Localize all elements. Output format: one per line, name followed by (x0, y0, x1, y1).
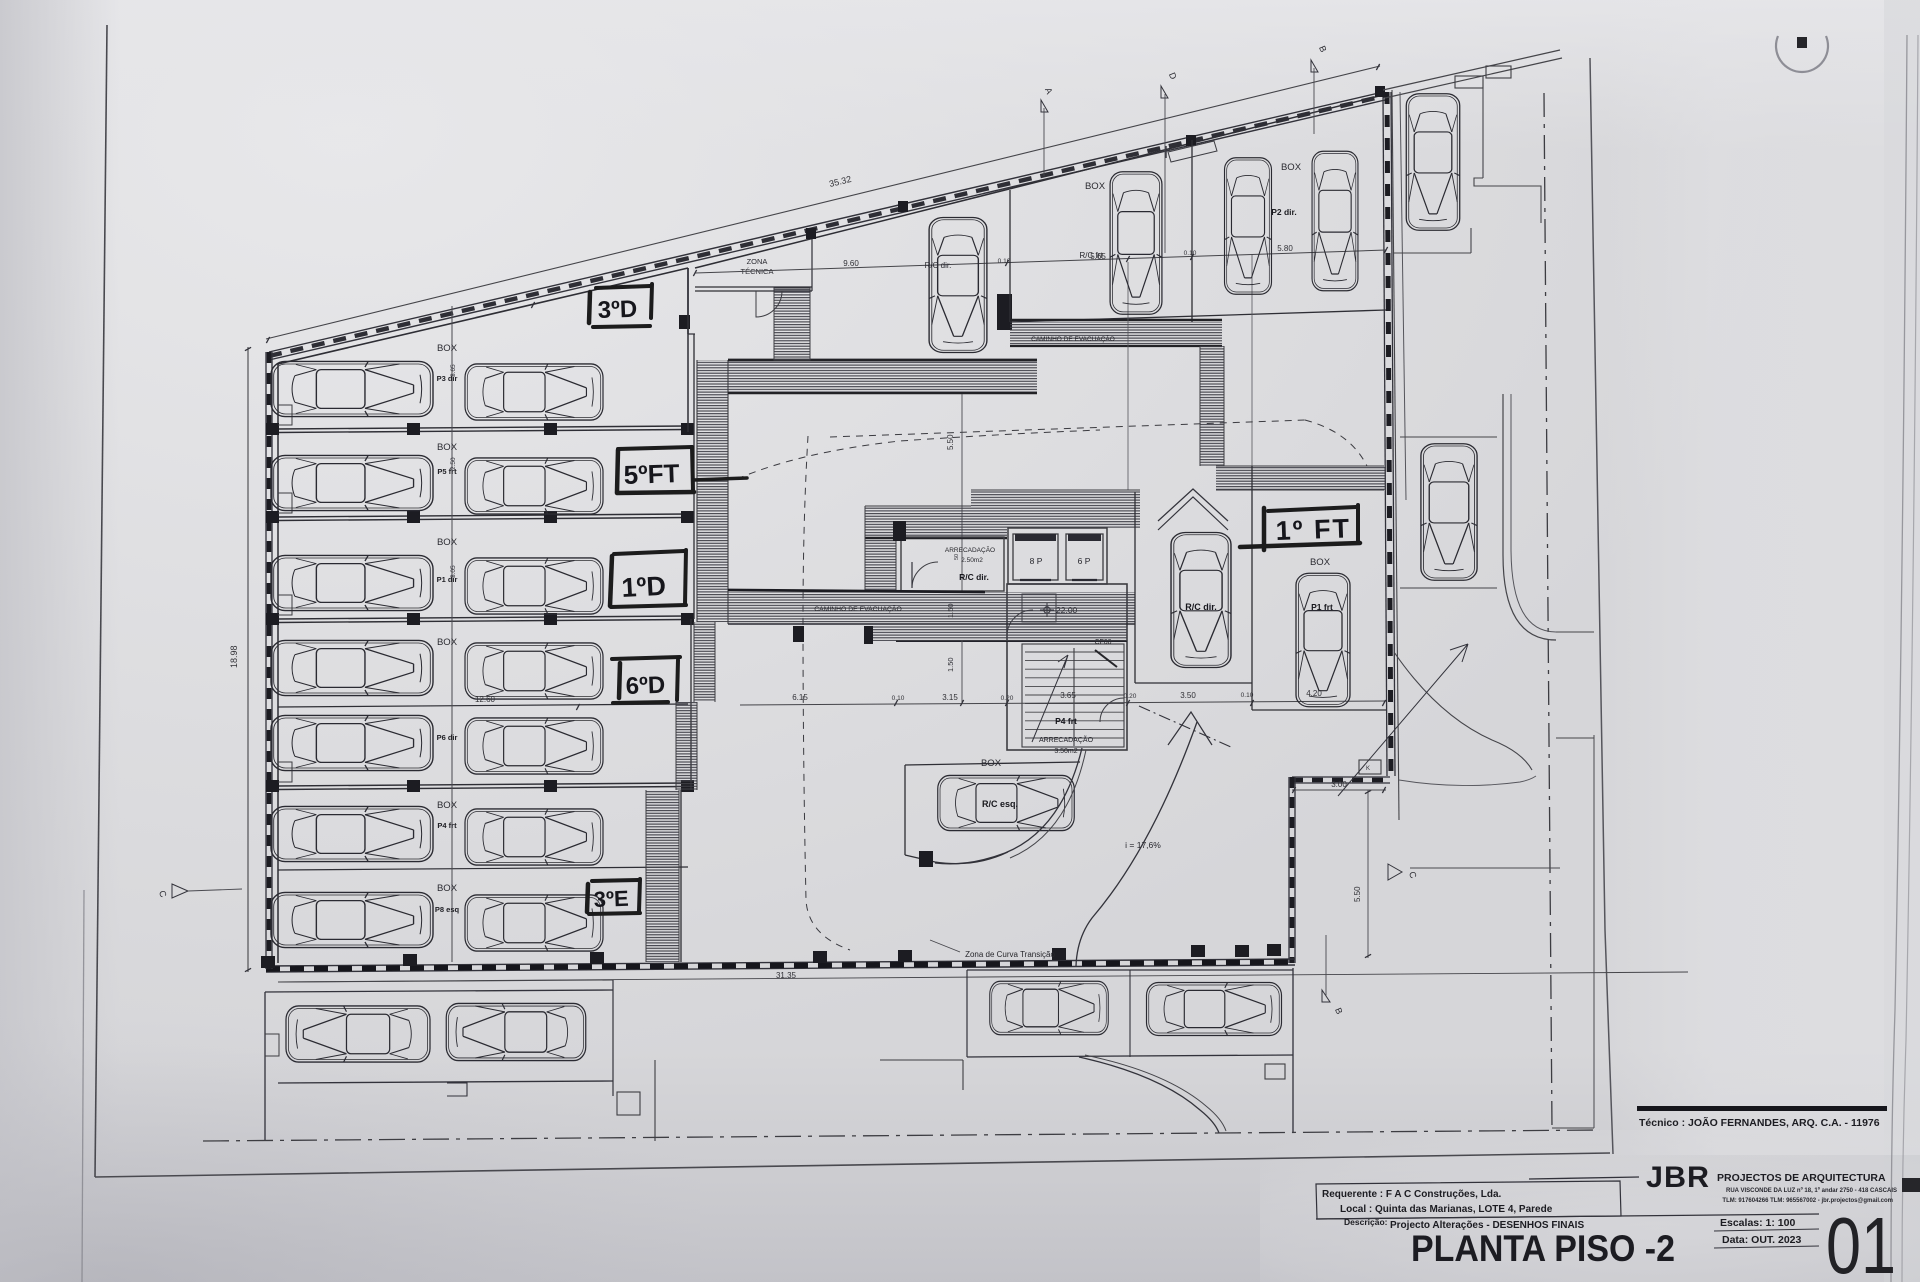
svg-text:BOX: BOX (437, 883, 458, 894)
svg-text:CAMINHO DE EVACUAÇÃO: CAMINHO DE EVACUAÇÃO (814, 604, 902, 613)
svg-text:R/C dir.: R/C dir. (1185, 602, 1217, 612)
svg-text:RUA VISCONDE DA LUZ nº 18, 1º: RUA VISCONDE DA LUZ nº 18, 1º andar 2750… (1726, 1188, 1897, 1194)
svg-text:2.50m2: 2.50m2 (961, 557, 983, 564)
svg-text:BOX: BOX (437, 537, 458, 548)
svg-text:3.05: 3.05 (450, 565, 457, 578)
svg-text:5.50: 5.50 (1353, 886, 1362, 902)
svg-text:3.15: 3.15 (942, 693, 958, 702)
svg-text:Local : Quinta das Marianas, L: Local : Quinta das Marianas, LOTE 4, Par… (1340, 1204, 1553, 1215)
svg-text:Requerente : F A C Construçõe: Requerente : F A C Construções, Lda. (1322, 1189, 1502, 1200)
svg-text:JBR: JBR (1646, 1161, 1710, 1194)
svg-text:3.65: 3.65 (1060, 691, 1076, 700)
svg-text:9.60: 9.60 (843, 259, 859, 268)
svg-text:3ºE: 3ºE (593, 886, 629, 912)
svg-text:0.10: 0.10 (1184, 250, 1197, 257)
svg-text:P2 dir.: P2 dir. (1271, 207, 1297, 217)
svg-text:5.50: 5.50 (946, 434, 955, 450)
svg-text:CAMINHO DE EVACUAÇÃO: CAMINHO DE EVACUAÇÃO (1031, 334, 1115, 343)
svg-text:3.50: 3.50 (1180, 691, 1196, 700)
svg-text:P4 frt: P4 frt (1055, 716, 1077, 726)
svg-text:BOX: BOX (437, 800, 458, 811)
svg-text:6 P: 6 P (1078, 556, 1091, 566)
svg-text:1.50: 1.50 (946, 657, 955, 672)
svg-text:i = 17,6%: i = 17,6% (1125, 840, 1161, 850)
svg-text:50: 50 (954, 554, 960, 560)
svg-text:BOX: BOX (981, 758, 1002, 769)
svg-text:6.15: 6.15 (792, 693, 808, 702)
svg-text:R/C frt: R/C frt (1079, 251, 1103, 260)
svg-text:Descrição:: Descrição: (1344, 1217, 1388, 1227)
svg-text:5.80: 5.80 (1277, 244, 1293, 253)
svg-text:12.60: 12.60 (475, 695, 496, 704)
svg-text:P4 frt: P4 frt (437, 821, 457, 830)
svg-text:P8 esq: P8 esq (435, 905, 460, 914)
svg-text:18.98: 18.98 (229, 645, 239, 668)
svg-text:PLANTA PISO -2: PLANTA PISO -2 (1411, 1228, 1675, 1269)
svg-text:6ºD: 6ºD (625, 672, 665, 700)
svg-text:Data: OUT. 2023: Data: OUT. 2023 (1722, 1234, 1802, 1246)
svg-text:1.50: 1.50 (946, 603, 955, 618)
svg-text:31.35: 31.35 (776, 971, 797, 980)
svg-text:0.20: 0.20 (1124, 693, 1137, 700)
svg-text:ZONA: ZONA (747, 257, 768, 266)
svg-text:P1 frt: P1 frt (1311, 602, 1333, 612)
svg-text:Escalas: 1: 100: Escalas: 1: 100 (1720, 1217, 1795, 1229)
svg-text:BOX: BOX (1085, 181, 1106, 192)
svg-text:Zona de Curva Transição: Zona de Curva Transição (965, 950, 1055, 959)
svg-text:R/C esq.: R/C esq. (982, 799, 1018, 809)
svg-text:R/C dir.: R/C dir. (959, 572, 989, 582)
svg-text:0.10: 0.10 (998, 258, 1011, 265)
svg-text:0.10: 0.10 (892, 695, 905, 702)
svg-text:01: 01 (1826, 1201, 1896, 1282)
svg-text:Técnico : JOÃO FERNANDES, ARQ.: Técnico : JOÃO FERNANDES, ARQ. C.A. - 11… (1639, 1116, 1880, 1129)
svg-text:K: K (1366, 766, 1370, 772)
svg-text:3.65: 3.65 (450, 364, 457, 377)
svg-text:ARRECADAÇÃO: ARRECADAÇÃO (945, 545, 995, 554)
svg-text:8 P: 8 P (1030, 556, 1043, 566)
svg-text:BOX: BOX (1310, 557, 1331, 568)
svg-text:PROJECTOS DE ARQUITECTURA: PROJECTOS DE ARQUITECTURA (1717, 1172, 1886, 1184)
svg-text:BOX: BOX (437, 343, 458, 354)
svg-text:3ºD: 3ºD (597, 296, 637, 324)
svg-text:BOX: BOX (437, 442, 458, 453)
svg-text:3.50m2: 3.50m2 (1054, 748, 1077, 755)
svg-text:BOX: BOX (1281, 162, 1302, 173)
svg-text:P6 dir: P6 dir (437, 733, 458, 742)
svg-text:1º FT: 1º FT (1275, 513, 1351, 546)
svg-text:BOX: BOX (437, 637, 458, 648)
svg-text:5ºFT: 5ºFT (623, 458, 680, 490)
svg-text:ARRECADAÇÃO: ARRECADAÇÃO (1039, 735, 1094, 744)
svg-text:2.50: 2.50 (450, 457, 457, 470)
svg-text:0.20: 0.20 (1001, 695, 1014, 702)
svg-text:1ºD: 1ºD (621, 571, 667, 603)
